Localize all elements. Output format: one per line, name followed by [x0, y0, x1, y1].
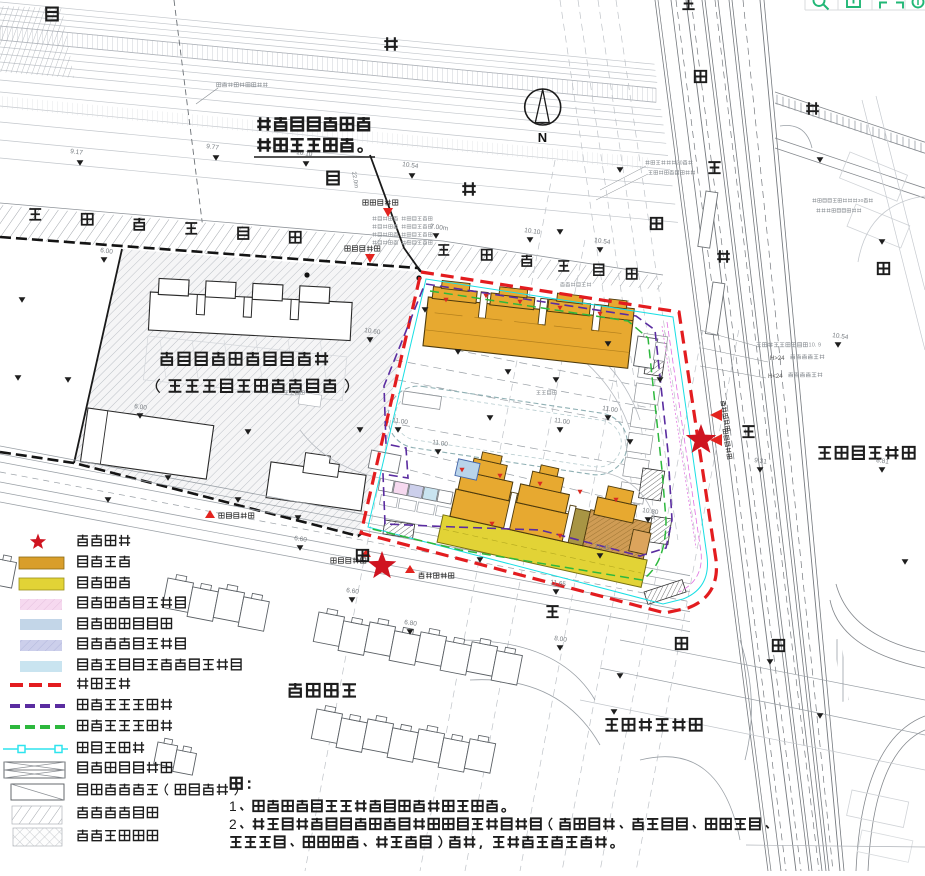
svg-text:2: 2 — [229, 817, 237, 832]
svg-text:1: 1 — [229, 799, 237, 814]
svg-text:H<24: H<24 — [768, 374, 783, 380]
svg-text:0: 0 — [861, 198, 864, 204]
svg-text:0: 0 — [680, 160, 683, 166]
svg-text:H>24: H>24 — [770, 356, 785, 362]
svg-text:N: N — [538, 130, 547, 145]
svg-text:9: 9 — [818, 343, 821, 349]
